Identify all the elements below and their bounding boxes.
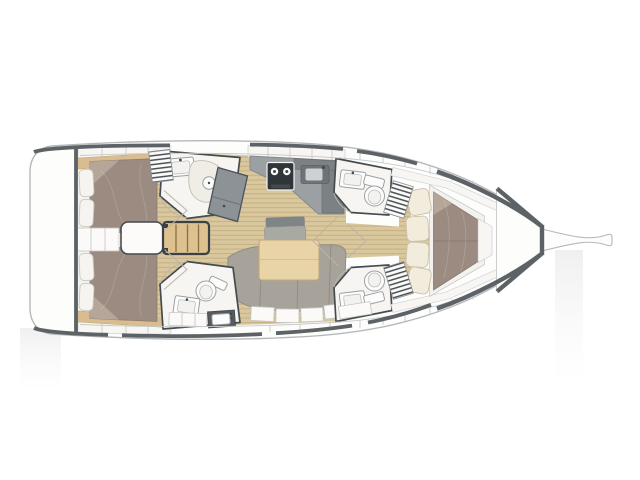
shadow-strip-left — [20, 328, 61, 390]
galley-stove — [267, 163, 294, 191]
forward-port-head — [334, 159, 392, 216]
aft-starboard-cabin — [77, 247, 172, 335]
pillow — [79, 169, 94, 197]
engine-hatch — [121, 222, 163, 254]
wet-counter — [207, 310, 235, 328]
storage-drawers — [169, 312, 207, 326]
foot-locker-band — [77, 228, 119, 251]
shelf-hatch — [149, 149, 174, 182]
bowsprit — [542, 229, 612, 251]
forward-starboard-head — [334, 265, 392, 322]
pillow — [79, 253, 94, 281]
hull-cushion — [406, 242, 430, 268]
yacht-floorplan-diagram: Sailing yacht interior layout plan, top … — [0, 0, 640, 480]
pillow — [79, 283, 94, 311]
vanity-sink — [339, 170, 366, 190]
pillow — [79, 199, 94, 227]
galley-sink — [301, 166, 329, 184]
floorplan-canvas: Sailing yacht interior layout plan, top … — [0, 0, 640, 480]
companionway-steps — [163, 222, 209, 254]
shadow-strip-right — [555, 250, 583, 385]
berth-foot-step — [478, 219, 492, 263]
hull-cushion — [406, 216, 430, 242]
salon-table — [259, 240, 319, 280]
